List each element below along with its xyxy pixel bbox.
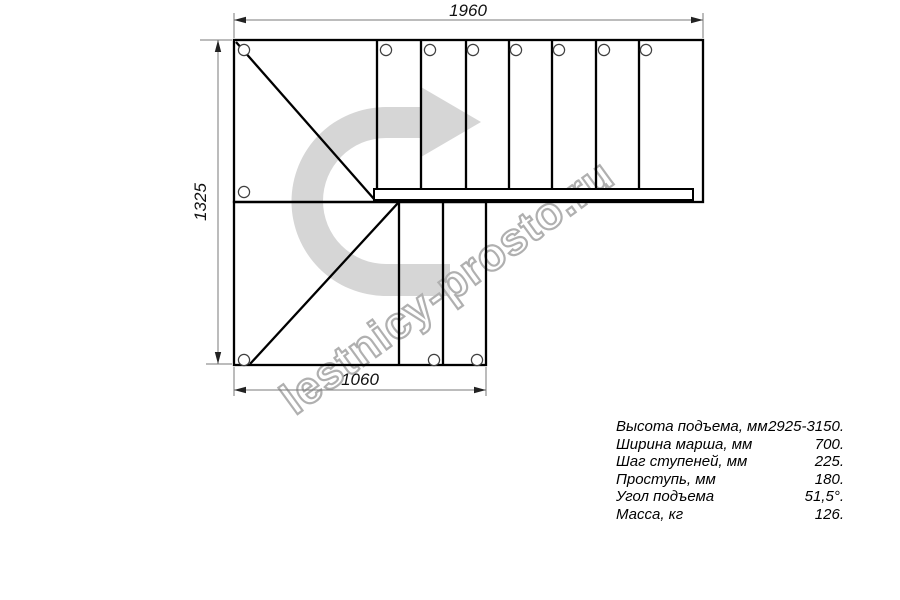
mounting-hole — [238, 44, 249, 55]
stair-plan-drawing: lestnicy-prosto.ru — [0, 0, 900, 600]
spec-label: Ширина марша, мм — [616, 436, 752, 454]
spec-row: Шаг ступеней, мм 225. — [616, 453, 844, 471]
dim-arrow-icon — [474, 387, 486, 393]
mounting-hole — [428, 354, 439, 365]
spec-table: Высота подъема, мм 2925-3150. Ширина мар… — [616, 418, 844, 524]
mounting-hole — [424, 44, 435, 55]
spec-label: Проступь, мм — [616, 471, 716, 489]
dim-arrow-icon — [215, 40, 221, 52]
spec-row: Высота подъема, мм 2925-3150. — [616, 418, 844, 436]
spec-value: 51,5°. — [805, 488, 844, 506]
spec-row: Ширина марша, мм 700. — [616, 436, 844, 454]
dimension-left-label: 1325 — [191, 183, 210, 221]
stringer-bar — [374, 189, 693, 200]
spec-label: Масса, кг — [616, 506, 683, 524]
dimension-bottom-label: 1060 — [341, 370, 379, 389]
spec-label: Высота подъема, мм — [616, 418, 768, 436]
dim-arrow-icon — [234, 17, 246, 23]
spec-value: 180. — [815, 471, 844, 489]
mounting-hole — [467, 44, 478, 55]
spec-row: Проступь, мм 180. — [616, 471, 844, 489]
mounting-hole — [640, 44, 651, 55]
mounting-hole — [471, 354, 482, 365]
mounting-hole — [238, 186, 249, 197]
dim-arrow-icon — [234, 387, 246, 393]
spec-label: Шаг ступеней, мм — [616, 453, 747, 471]
dim-arrow-icon — [215, 352, 221, 364]
dimension-left: 1325 — [191, 40, 232, 364]
spec-label: Угол подъема — [616, 488, 714, 506]
dimension-top-label: 1960 — [449, 1, 487, 20]
mounting-hole — [238, 354, 249, 365]
spec-value: 225. — [815, 453, 844, 471]
spec-row: Масса, кг 126. — [616, 506, 844, 524]
spec-value: 2925-3150. — [768, 418, 844, 436]
mounting-hole — [553, 44, 564, 55]
mounting-hole — [510, 44, 521, 55]
spec-row: Угол подъема 51,5°. — [616, 488, 844, 506]
spec-value: 700. — [815, 436, 844, 454]
spec-value: 126. — [815, 506, 844, 524]
dim-arrow-icon — [691, 17, 703, 23]
mounting-hole — [598, 44, 609, 55]
mounting-hole — [380, 44, 391, 55]
dimension-top: 1960 — [234, 1, 703, 38]
